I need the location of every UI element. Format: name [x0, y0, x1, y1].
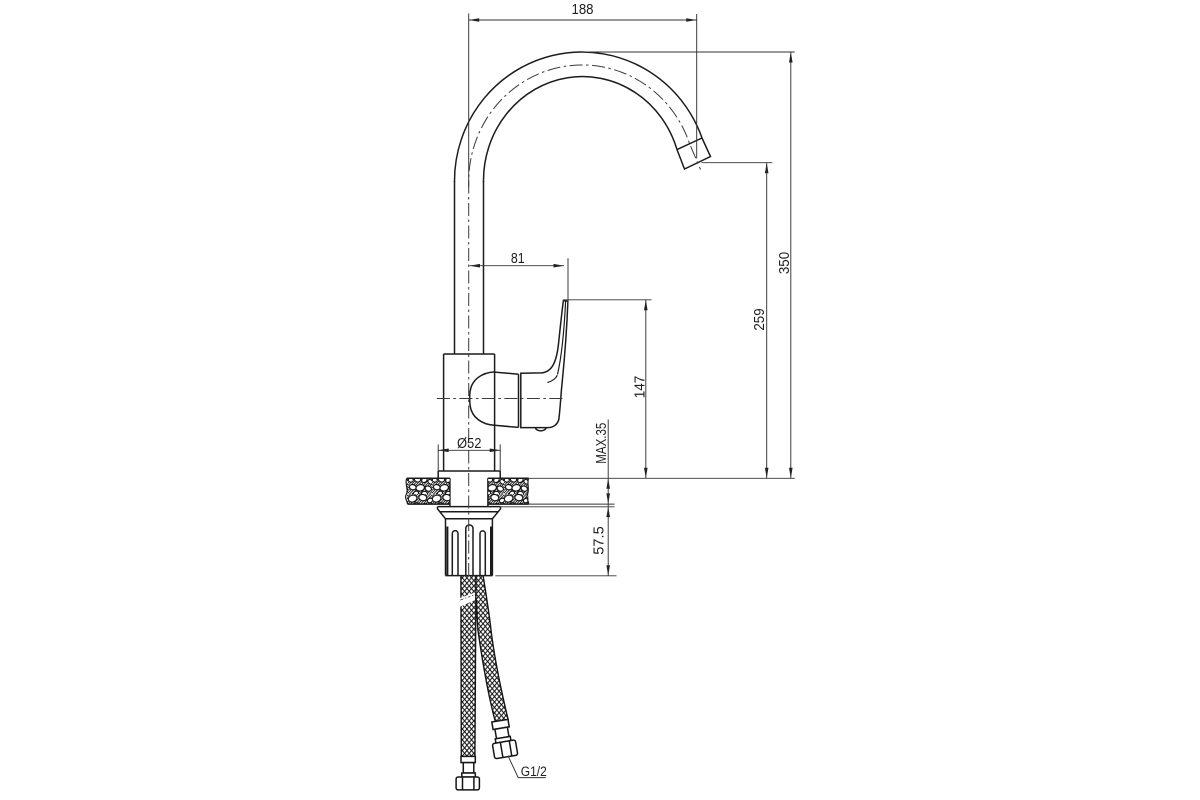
svg-text:81: 81: [511, 251, 525, 267]
svg-text:188: 188: [572, 2, 594, 18]
svg-text:147: 147: [633, 376, 649, 399]
svg-text:G1/2: G1/2: [521, 764, 547, 779]
svg-text:259: 259: [752, 308, 768, 330]
svg-text:MAX.35: MAX.35: [594, 423, 610, 464]
svg-text:Ø52: Ø52: [457, 435, 482, 452]
svg-text:57.5: 57.5: [592, 526, 608, 555]
svg-text:350: 350: [777, 252, 793, 274]
